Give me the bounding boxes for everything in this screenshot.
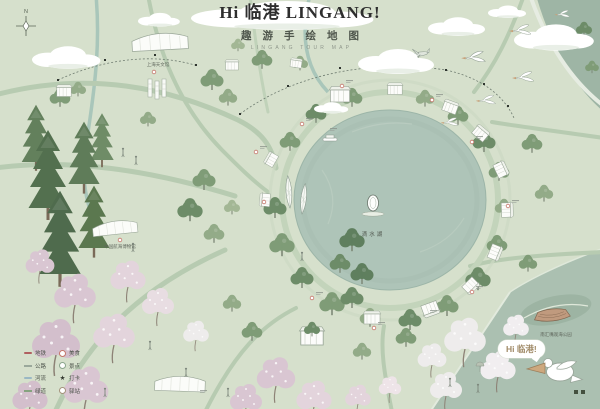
legend-label: 美食 <box>69 349 80 357</box>
landmark-label: 南汇嘴观海公园 <box>540 331 572 338</box>
river-line-icon <box>24 377 32 379</box>
lingang-tour-map: N 滴水湖 上海天文馆 中国航海博物馆 南汇嘴观海公园 Hi 临港 LINGAN… <box>0 0 600 409</box>
road-line-icon <box>24 365 32 367</box>
legend-item: 景点 <box>59 362 80 370</box>
legend-label: 地铁 <box>35 349 46 357</box>
legend-item: 绿道 <box>24 387 46 395</box>
speech-bubble-text: Hi 临港! <box>506 344 537 354</box>
logo-mark <box>574 390 578 394</box>
title-block: Hi 临港 LINGANG! 趣游手绘地图 LINGANG TOUR MAP <box>130 3 470 51</box>
metro-line-icon <box>24 352 32 354</box>
star-badge-icon: ★ <box>59 375 66 382</box>
map-subtitle-cn: 趣游手绘地图 <box>130 28 470 43</box>
landmark-label: 上海天文馆 <box>147 61 170 68</box>
legend-column-lines: 地铁 公路 河流 绿道 <box>24 349 46 395</box>
speech-bubble: Hi 临港! <box>498 340 545 358</box>
lake-label: 滴水湖 <box>362 230 385 238</box>
legend-label: 驿站 <box>69 387 80 395</box>
compass-n-label: N <box>24 9 28 15</box>
map-legend: 地铁 公路 河流 绿道 美食 景点 ★ 打卡 驿站 <box>24 349 80 395</box>
logo-mark <box>581 390 585 394</box>
legend-item: 地铁 <box>24 349 46 357</box>
legend-item: ★ 打卡 <box>59 374 80 382</box>
legend-label: 景点 <box>69 362 80 370</box>
legend-item: 公路 <box>24 362 46 370</box>
legend-label: 公路 <box>35 362 46 370</box>
legend-column-badges: 美食 景点 ★ 打卡 驿站 <box>59 349 80 395</box>
legend-item: 美食 <box>59 349 80 357</box>
legend-item: 河流 <box>24 374 46 382</box>
map-subtitle-en: LINGANG TOUR MAP <box>130 45 470 51</box>
logo-marks <box>574 390 585 394</box>
legend-label: 绿道 <box>35 387 46 395</box>
legend-item: 驿站 <box>59 387 80 395</box>
greenway-line-icon <box>24 390 32 392</box>
map-title: Hi 临港 LINGANG! <box>130 3 470 23</box>
legend-label: 河流 <box>35 374 46 382</box>
scenic-badge-icon <box>59 362 66 369</box>
landmark-label: 中国航海博物馆 <box>104 243 136 250</box>
legend-label: 打卡 <box>69 374 80 382</box>
food-badge-icon <box>59 350 66 357</box>
station-badge-icon <box>59 387 66 394</box>
dishui-lake <box>294 110 486 290</box>
